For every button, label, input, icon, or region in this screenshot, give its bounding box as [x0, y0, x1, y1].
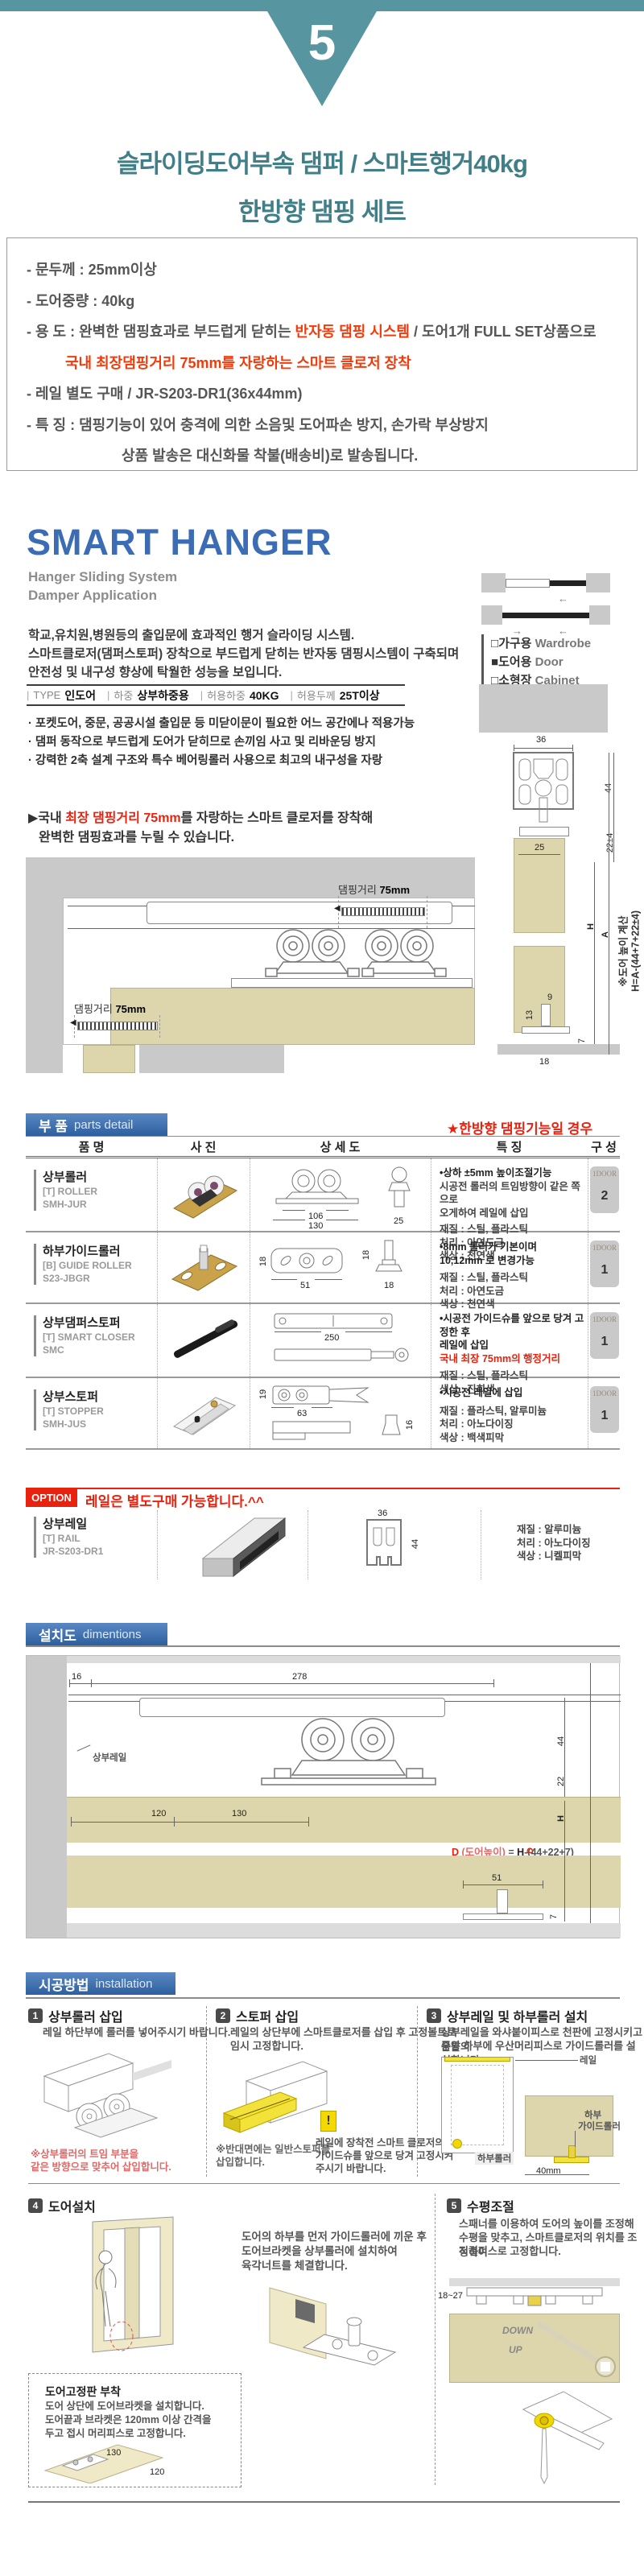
spec-usage-highlight: 반자동 댐핑 시스템 [295, 324, 410, 340]
door-lower [67, 1856, 621, 1908]
spec-type: |TYPE인도어 [27, 687, 96, 704]
installation-header-kr: 시공방법 [39, 1974, 89, 1994]
floor-strip [67, 1923, 621, 1938]
bracket-box-line2: 도어끝과 브라켓은 120mm 이상 간격을 [45, 2413, 211, 2427]
guide-pin [541, 1004, 551, 1026]
part-code: [T] STOPPER [43, 1405, 157, 1418]
part-row-top-roller: 상부롤러 [T] ROLLER SMH-JUR [26, 1158, 620, 1232]
legend-kr: 가구용 [498, 637, 531, 650]
spec-label: TYPE [33, 689, 60, 701]
qty-badge: 1DOOR2 [590, 1166, 619, 1213]
dim-7: 7 [549, 1914, 559, 1919]
step4-desc-line2: 도어브라켓을 상부롤러에 설치하여 [242, 2244, 398, 2259]
one-way-damping-note: ★한방향 댐핑기능일 경우 [447, 1117, 592, 1137]
guide-plate [463, 1913, 543, 1920]
step-title-text: 수평조절 [467, 2196, 514, 2215]
guide-roller-pin [568, 2145, 576, 2158]
bottom-divider [28, 2501, 620, 2503]
step4-guide-illustration [254, 2285, 415, 2373]
brand-description-1: 학교,유치원,병원등의 출입문에 효과적인 행거 슬라이딩 시스템. [28, 626, 354, 645]
step-number: 4 [28, 2198, 43, 2213]
parts-section-header: 부 품parts detail [26, 1113, 167, 1136]
roller-assembly-drawing [259, 928, 452, 980]
parts-table: 품 명 사 진 상 세 도 특 징 구 성 상부롤러 [T] ROLLER SM… [26, 1137, 620, 1450]
wrench-icon [530, 2315, 618, 2383]
legend-kr: 도어용 [498, 655, 531, 669]
door-bracket [519, 827, 569, 836]
part-code: [B] GUIDE ROLLER [43, 1259, 157, 1272]
dim-36: 36 [536, 735, 546, 745]
dim-18: 18 [258, 1257, 268, 1266]
spec-label: 하중 [114, 687, 133, 703]
step2-warning-line1: 레일에 장착전 스마트 클로저의 [316, 2136, 444, 2149]
feature-line: •상하 ±5mm 높이조절기능 [440, 1166, 588, 1180]
wall-section-beige [83, 1045, 135, 1073]
spec-max-thickness: |허용두께25T이상 [291, 687, 380, 704]
part-code: [T] RAIL [43, 1532, 103, 1545]
arrowhead-icon: ◀ [70, 1018, 76, 1027]
col-features: 특 징 [431, 1138, 588, 1155]
damping-label-mm: 75mm [379, 884, 410, 896]
badge-qty: 1 [590, 1323, 619, 1359]
closer-prefix: ▶국내 [28, 811, 65, 825]
step1-illustration [36, 2049, 189, 2139]
dim-120: 120 [151, 1809, 166, 1818]
part-row-smart-closer: 상부댐퍼스토퍼 [T] SMART CLOSER SMC 250 [26, 1304, 620, 1378]
step5-desc-line3: 직결피스로 고정합니다. [459, 2244, 561, 2259]
step5-screw-illustration [515, 2387, 620, 2487]
guide-pin [497, 1889, 508, 1913]
damping-label-top: 댐핑거리 75mm [338, 881, 410, 897]
spec-features: - 특 징 : 댐핑기능이 있어 충격에 의한 소음및 도어파손 방지, 손가락… [27, 410, 637, 441]
brand-title: SMART HANGER [27, 522, 332, 563]
qty-badge: 1DOOR1 [590, 1241, 619, 1287]
step2-desc-line1: 레일의 상단부에 스마트클로저를 삽입 후 고정볼트로 [230, 2025, 456, 2040]
step5-desc-line1: 스패너를 이용하여 도어의 높이를 조정해 [459, 2217, 634, 2231]
wall-section-gray [139, 1045, 284, 1073]
step4-desc-line1: 도어의 하부를 먼저 가이드롤러에 끼운 후 [242, 2230, 427, 2244]
door-panel-lower [514, 946, 565, 1033]
installation-dimension-drawing: 16 278 상부레일 120 130 D (도어높이) = H-( [26, 1655, 620, 1938]
feature-line: •8mm 롤러가 기본이며 [440, 1241, 588, 1254]
dim-278: 278 [292, 1672, 307, 1682]
bracket-box-line1: 도어 상단에 도어브라켓을 설치합니다. [45, 2400, 204, 2413]
dim-25: 25 [394, 1216, 403, 1226]
brand-subtitle-2: Damper Application [28, 586, 157, 605]
dim-H: H [586, 923, 596, 930]
step1-title: 1상부롤러 삽입 [28, 2006, 123, 2025]
brand-description-3: 안전성 및 내구성 향상에 탁월한 성능을 보입니다. [28, 663, 282, 682]
step-title-text: 상부롤러 삽입 [48, 2006, 123, 2025]
spec-value: 25T이상 [340, 687, 380, 704]
dim-16: 16 [405, 1420, 415, 1430]
catalog-page: 5 슬라이딩도어부속 댐퍼 / 스마트행거40kg 한방향 댐핑 세트 - 문두… [0, 0, 644, 2576]
spec-usage-suffix: / 도어1개 FULL SET상품으로 [410, 324, 597, 340]
col-photo: 사 진 [157, 1138, 250, 1155]
door-bracket-plate [231, 978, 473, 988]
arrow-left-icon: ← [558, 592, 568, 605]
part-name: 상부롤러 [43, 1170, 157, 1185]
product-spec-box: - 문두께 : 25mm이상 - 도어중량 : 40kg - 용 도 : 완벽한… [6, 237, 638, 471]
badge-qty: 1 [590, 1252, 619, 1287]
dim-A: A [601, 931, 610, 938]
step-number: 5 [447, 2198, 461, 2213]
legend-en: Door [535, 655, 563, 669]
badge-qty: 1 [590, 1397, 619, 1433]
top-accent-bar [0, 0, 644, 11]
step2-desc-line2: 임시 고정합니다. [230, 2039, 303, 2054]
brand-subtitle-1: Hanger Sliding System [28, 568, 177, 587]
ceiling-block [479, 684, 608, 733]
spec-usage: - 용 도 : 완벽한 댐핑효과로 부드럽게 닫히는 반자동 댐핑 시스템 / … [27, 316, 637, 348]
parts-header-kr: 부 품 [39, 1115, 68, 1135]
guide-roller-side-drawing [371, 1239, 407, 1279]
badge-qty: 2 [590, 1178, 619, 1213]
legend-item-wardrobe: □가구용 Wardrobe [491, 634, 591, 653]
formula-expression: H=A-(44+7+22±4) [630, 910, 642, 992]
installation-header-en: installation [96, 1977, 153, 1991]
dim-7: 7 [577, 1038, 587, 1043]
col-name: 품 명 [26, 1138, 157, 1155]
damping-label-kr: 댐핑거리 [74, 1003, 115, 1015]
stopper-photo [167, 1388, 242, 1439]
bottom-roller-label: 하부롤러 [475, 2152, 514, 2165]
legend-symbol: ■ [491, 655, 498, 669]
option-text: 레일은 별도구매 가능합니다.^^ [85, 1490, 264, 1510]
spec-max-load: |허용하중40KG [200, 687, 279, 703]
closer-suffix: 를 자랑하는 스마트 클로저를 장착해 [181, 811, 374, 825]
step4-title: 4도어설치 [28, 2196, 96, 2215]
spec-label: 허용하중 [207, 687, 246, 703]
ceiling-strip [67, 1656, 621, 1663]
dim-120: 120 [150, 2467, 164, 2477]
part-name: 하부가이드롤러 [43, 1244, 157, 1259]
step-title-text: 상부레일 및 하부롤러 설치 [447, 2006, 588, 2025]
step1-note-line1: ※상부롤러의 트임 부분을 [31, 2148, 138, 2161]
bracket-dim-illustration [40, 2442, 169, 2483]
part-name: 상부레일 [43, 1517, 103, 1532]
feature-finish: 처리 : 아노다이징 [517, 1537, 591, 1550]
step2-note-line2: 삽입합니다. [216, 2156, 265, 2169]
step2-illustration [219, 2057, 332, 2141]
feature-bullet-3: · 강력한 2축 설계 구조와 특수 베어링롤러 사용으로 최고의 내구성을 자… [28, 752, 382, 770]
dim-51: 51 [300, 1281, 310, 1290]
spec-value: 40KG [250, 689, 279, 702]
badge-label: 1DOOR [590, 1241, 619, 1252]
rail-callout-label: 상부레일 [93, 1751, 126, 1764]
dim-106: 106 [308, 1212, 323, 1221]
door-height-formula: ※도어 높이 계산 H=A-(44+7+22±4) [615, 857, 642, 1046]
rail-profile-detail [364, 1518, 404, 1568]
dim-18: 18 [539, 1057, 549, 1067]
step-number: 1 [28, 2008, 43, 2023]
bracket-box-title: 도어고정판 부착 [45, 2384, 121, 2400]
arrowhead-icon: ◀ [334, 904, 341, 913]
badge-label: 1DOOR [590, 1166, 619, 1178]
rail-option-row: 상부레일 [T] RAIL JR-S203-DR1 36 44 재질 : 알루미… [26, 1510, 620, 1579]
top-roller-side-drawing [386, 1165, 413, 1213]
page-title-line1: 슬라이딩도어부속 댐퍼 / 스마트행거40kg [0, 143, 644, 180]
part-row-stopper: 상부스토퍼 [T] STOPPER SMH-JUS 19 63 [26, 1378, 620, 1450]
legend-en: Wardrobe [535, 637, 591, 650]
step2-title: 2스토퍼 삽입 [216, 2006, 299, 2025]
dim-44: 44 [411, 1539, 420, 1549]
step5-level-illustration: 18~27 DOWN UP [449, 2278, 620, 2383]
roller-row-drawing [465, 2286, 604, 2314]
damping-label-bottom: 댐핑거리 75mm [74, 1001, 146, 1016]
door-panel [110, 988, 475, 1045]
rail-photo [195, 1512, 291, 1578]
legend-symbol: □ [491, 637, 498, 650]
feature-line: •시공전 레일에 삽입 [440, 1386, 588, 1400]
spec-label: 허용두께 [297, 687, 336, 703]
dimensions-header-kr: 설치도 [39, 1624, 76, 1645]
dim-18-27: 18~27 [438, 2291, 463, 2301]
dim-44: 44 [556, 1736, 566, 1746]
guide-roller-label-2: 가이드롤러 [578, 2120, 621, 2132]
step-number: 5 [267, 14, 377, 72]
roller-assembly [260, 1717, 437, 1786]
step3-title: 3상부레일 및 하부롤러 설치 [427, 2006, 588, 2025]
dim-D: D [526, 1847, 535, 1854]
dim-H: H [556, 1815, 566, 1822]
left-wall-frame [26, 857, 63, 1073]
type-spec-strip: |TYPE인도어 |하중상부하중용 |허용하중40KG |허용두께25T이상 [27, 684, 405, 706]
step4-desc-line3: 육각너트를 체결합니다. [242, 2259, 348, 2273]
dimensions-header-en: dimentions [83, 1628, 142, 1641]
spec-door-weight: - 도어중량 : 40kg [27, 286, 637, 317]
spec-rail-purchase: - 레일 별도 구매 / JR-S203-DR1(36x44mm) [27, 378, 637, 410]
spec-door-thickness: - 문두께 : 25mm이상 [27, 254, 637, 286]
stopper-end-drawing [379, 1414, 403, 1439]
step-number: 3 [427, 2008, 441, 2023]
formula-note: ※도어 높이 계산 [618, 915, 630, 986]
step2-note-line1: ※반대면에는 일반스토퍼를 [216, 2143, 330, 2156]
dim-22: 22 [556, 1777, 566, 1786]
brand-description-2: 스마트클로저(댐퍼스토퍼) 장착으로 부드럽게 닫히는 반자동 댐핑시스템이 구… [28, 645, 459, 663]
step-title-text: 도어설치 [48, 2196, 96, 2215]
feature-line: 레일에 삽입 [440, 1339, 588, 1352]
closer-body [139, 1698, 445, 1717]
floor-block [497, 1044, 620, 1055]
installation-section-header: 시공방법installation [26, 1972, 175, 1995]
spec-usage-prefix: - 용 도 : 완벽한 댐핑효과로 부드럽게 닫히는 [27, 324, 295, 340]
screw-highlight [452, 2139, 462, 2149]
feature-finish: 처리 : 아노다이징 [440, 1418, 588, 1431]
damping-stroke-top [341, 907, 425, 916]
part-code: [T] SMART CLOSER [43, 1331, 157, 1344]
spec-value: 인도어 [64, 687, 96, 704]
part-name: 상부댐퍼스토퍼 [43, 1315, 157, 1331]
stopper-side-drawing [271, 1420, 352, 1441]
cross-section-diagram: 36 44 22±4 25 9 13 18 7 H A [475, 680, 644, 1099]
page-title-line2: 한방향 댐핑 세트 [0, 192, 644, 228]
step4-door-illustration [76, 2215, 201, 2364]
closer-note-line2: 완벽한 댐핑효과를 누릴 수 있습니다. [39, 828, 234, 847]
feature-line: 10,12mm 로 변경가능 [440, 1254, 588, 1268]
damping-stroke-bottom [77, 1022, 158, 1030]
damping-distance-drawing: 댐핑거리 75mm ◀ 댐핑거리 75mm ◀ [26, 857, 475, 1073]
part-row-guide-roller: 하부가이드롤러 [B] GUIDE ROLLER S23-JBGR 1 [26, 1232, 620, 1304]
dim-130: 130 [106, 2448, 121, 2458]
dim-18: 18 [384, 1281, 394, 1290]
step5-title: 5수평조절 [447, 2196, 514, 2215]
col-detail: 상 세 도 [250, 1138, 431, 1155]
smart-closer-plan-drawing [273, 1312, 394, 1330]
feature-color: 색상 : 백색피막 [440, 1431, 588, 1445]
feature-material: 재질 : 플라스틱, 알루미늄 [440, 1405, 588, 1418]
spec-load-type: |하중상부하중용 [107, 687, 189, 704]
part-model: SMC [43, 1344, 157, 1356]
dim-36: 36 [378, 1509, 387, 1518]
col-qty: 구 성 [588, 1138, 620, 1155]
door-bracket-detail-box: 도어고정판 부착 도어 상단에 도어브라켓을 설치합니다. 도어끝과 브라켓은 … [28, 2373, 242, 2487]
door-upper [67, 1797, 621, 1843]
feature-line: •시공전 가이드슈를 앞으로 당겨 고정한 후 [440, 1312, 588, 1339]
dim-13: 13 [525, 1010, 535, 1020]
step1-desc: 레일 하단부에 롤러를 넣어주시기 바랍니다. [43, 2025, 230, 2040]
damping-label-kr: 댐핑거리 [338, 884, 379, 896]
dim-9: 9 [547, 993, 552, 1002]
parts-header-en: parts detail [74, 1118, 133, 1132]
step-number: 2 [216, 2008, 230, 2023]
guide-plate [522, 1026, 570, 1034]
part-model: SMH-JUS [43, 1418, 157, 1430]
closer-note-line1: ▶국내 최장 댐핑거리 75mm를 자랑하는 스마트 클로저를 장착해 [28, 809, 373, 828]
step2-warning-line3: 주시기 바랍니다. [316, 2162, 386, 2175]
step2-warning-line2: 가이드슈를 앞으로 당겨 고정시켜 [316, 2149, 453, 2162]
dim-18: 18 [361, 1250, 371, 1260]
parts-table-header: 품 명 사 진 상 세 도 특 징 구 성 [26, 1137, 620, 1158]
option-badge: OPTION [26, 1489, 77, 1507]
dim-51: 51 [492, 1873, 502, 1883]
step3-illustration: 레일 하부롤러 하부 가이드롤러 40mm [441, 2057, 614, 2178]
part-code: [T] ROLLER [43, 1185, 157, 1198]
feature-material: 재질 : 스틸, 플라스틱 [440, 1271, 588, 1285]
badge-label: 1DOOR [590, 1312, 619, 1323]
feature-bullet-2: · 댐퍼 동작으로 부드럽게 도어가 닫히므로 손끼임 사고 및 리바운딩 방지 [28, 733, 376, 752]
top-roller-photo [169, 1171, 240, 1221]
rail-name-cell: 상부레일 [T] RAIL JR-S203-DR1 [34, 1517, 103, 1558]
legend-item-door: ■도어용 Door [491, 653, 591, 671]
badge-label: 1DOOR [590, 1386, 619, 1397]
part-model: JR-S203-DR1 [43, 1545, 103, 1558]
smart-closer-photo [166, 1314, 243, 1367]
part-model: SMH-JUR [43, 1198, 157, 1211]
dim-22-4: 22±4 [605, 833, 615, 852]
spec-value: 상부하중용 [137, 687, 188, 704]
warning-icon: ! [320, 2111, 336, 2132]
dim-25: 25 [535, 843, 544, 852]
dim-63: 63 [297, 1409, 307, 1418]
up-label: UP [509, 2344, 522, 2355]
spec-shipping: 상품 발송은 대신화물 착불(배송비)로 발송됩니다. [122, 440, 637, 472]
smart-closer-side-drawing [273, 1344, 410, 1365]
guide-roller-photo [169, 1244, 240, 1294]
down-label: DOWN [502, 2325, 533, 2336]
feature-finish: 처리 : 아연도금 [440, 1285, 588, 1298]
feature-stroke-distance: 국내 최장 75mm의 행정거리 [440, 1352, 588, 1366]
feature-line: 오게하여 레일에 삽입 [440, 1207, 588, 1220]
qty-badge: 1DOOR1 [590, 1386, 619, 1433]
bracket-box-line3: 두고 접시 머리피스로 고정합니다. [45, 2427, 186, 2441]
rail-label: 레일 [580, 2054, 597, 2066]
step-title-text: 스토퍼 삽입 [236, 2006, 299, 2025]
damping-label-mm: 75mm [115, 1003, 146, 1015]
dim-130: 130 [232, 1809, 246, 1818]
step1-note-line2: 같은 방향으로 맞추어 삽입합니다. [31, 2161, 171, 2173]
guide-roller-plan-drawing [270, 1247, 344, 1274]
dim-130: 130 [308, 1221, 323, 1231]
top-roller-detail-drawing [265, 1166, 369, 1213]
closer-highlight: 최장 댐핑거리 75mm [65, 811, 180, 825]
dim-250: 250 [324, 1333, 339, 1343]
rail-profile-drawing [511, 751, 576, 825]
feature-line: 시공전 롤러의 트임방향이 같은 쪽으로 [440, 1180, 588, 1207]
dimensions-section-header: 설치도dimentions [26, 1623, 167, 1645]
part-model: S23-JBGR [43, 1272, 157, 1285]
feature-bullet-1: · 포켓도어, 중문, 공공시설 출입문 등 미닫이문이 필요한 어느 공간에나… [28, 715, 415, 733]
wall-left [27, 1656, 67, 1938]
stopper-plan-drawing [271, 1385, 371, 1406]
feature-material: 재질 : 알루미늄 [517, 1523, 591, 1537]
dim-19: 19 [258, 1389, 268, 1399]
spec-closer-highlight: 국내 최장댐핑거리 75mm를 자랑하는 스마트 클로저 장착 [65, 348, 637, 379]
qty-badge: 1DOOR1 [590, 1312, 619, 1359]
dim-16: 16 [72, 1672, 81, 1682]
part-name: 상부스토퍼 [43, 1389, 157, 1405]
feature-color: 색상 : 니켈피막 [517, 1550, 591, 1563]
